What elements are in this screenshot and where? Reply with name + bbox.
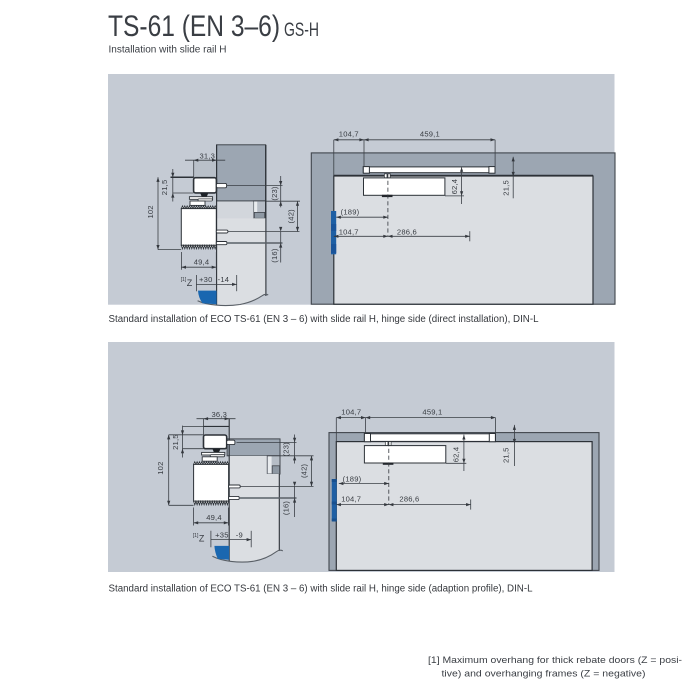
svg-text:104,7: 104,7	[341, 407, 361, 416]
svg-text:49,4: 49,4	[206, 513, 222, 522]
svg-text:104,7: 104,7	[339, 130, 359, 139]
svg-text:+35: +35	[215, 531, 228, 540]
svg-text:102: 102	[156, 461, 165, 474]
svg-text:104,7: 104,7	[341, 494, 361, 503]
svg-text:Standard installation of ECO T: Standard installation of ECO TS-61 (EN 3…	[109, 314, 539, 325]
svg-text:Standard installation of ECO T: Standard installation of ECO TS-61 (EN 3…	[109, 584, 533, 595]
svg-text:104,7: 104,7	[339, 228, 359, 237]
svg-text:(23): (23)	[282, 442, 291, 457]
svg-text:(189): (189)	[341, 207, 360, 216]
svg-text:TS-61 (EN 3–6): TS-61 (EN 3–6)	[108, 10, 280, 43]
svg-text:(16): (16)	[281, 501, 290, 516]
svg-text:tive) and overhanging frames (: tive) and overhanging frames (Z = negati…	[442, 669, 646, 680]
svg-text:(42): (42)	[299, 463, 308, 478]
svg-text:286,6: 286,6	[397, 228, 417, 237]
svg-text:286,6: 286,6	[399, 494, 419, 503]
svg-text:Z: Z	[187, 278, 193, 288]
svg-text:459,1: 459,1	[422, 407, 442, 416]
svg-text:21,5: 21,5	[501, 447, 510, 463]
svg-text:(23): (23)	[270, 186, 279, 201]
svg-text:49,4: 49,4	[194, 258, 210, 267]
svg-text:Z: Z	[199, 534, 205, 544]
svg-text:+30: +30	[199, 275, 212, 284]
svg-text:Installation with slide rail H: Installation with slide rail H	[109, 45, 227, 56]
svg-text:(189): (189)	[343, 474, 362, 483]
svg-text:459,1: 459,1	[420, 130, 440, 139]
svg-text:62,4: 62,4	[450, 179, 459, 195]
svg-text:(16): (16)	[270, 248, 279, 263]
svg-text:21,5: 21,5	[160, 180, 169, 196]
svg-text:[1] Maximum overhang for thick: [1] Maximum overhang for thick rebate do…	[428, 655, 682, 666]
svg-text:62,4: 62,4	[451, 447, 460, 463]
svg-text:21,5: 21,5	[501, 180, 510, 196]
svg-text:(42): (42)	[286, 209, 295, 224]
svg-text:-14: -14	[218, 275, 230, 284]
svg-text:GS-H: GS-H	[284, 19, 319, 41]
svg-text:-9: -9	[236, 531, 243, 540]
svg-text:21,5: 21,5	[171, 434, 180, 450]
svg-text:102: 102	[146, 205, 155, 218]
